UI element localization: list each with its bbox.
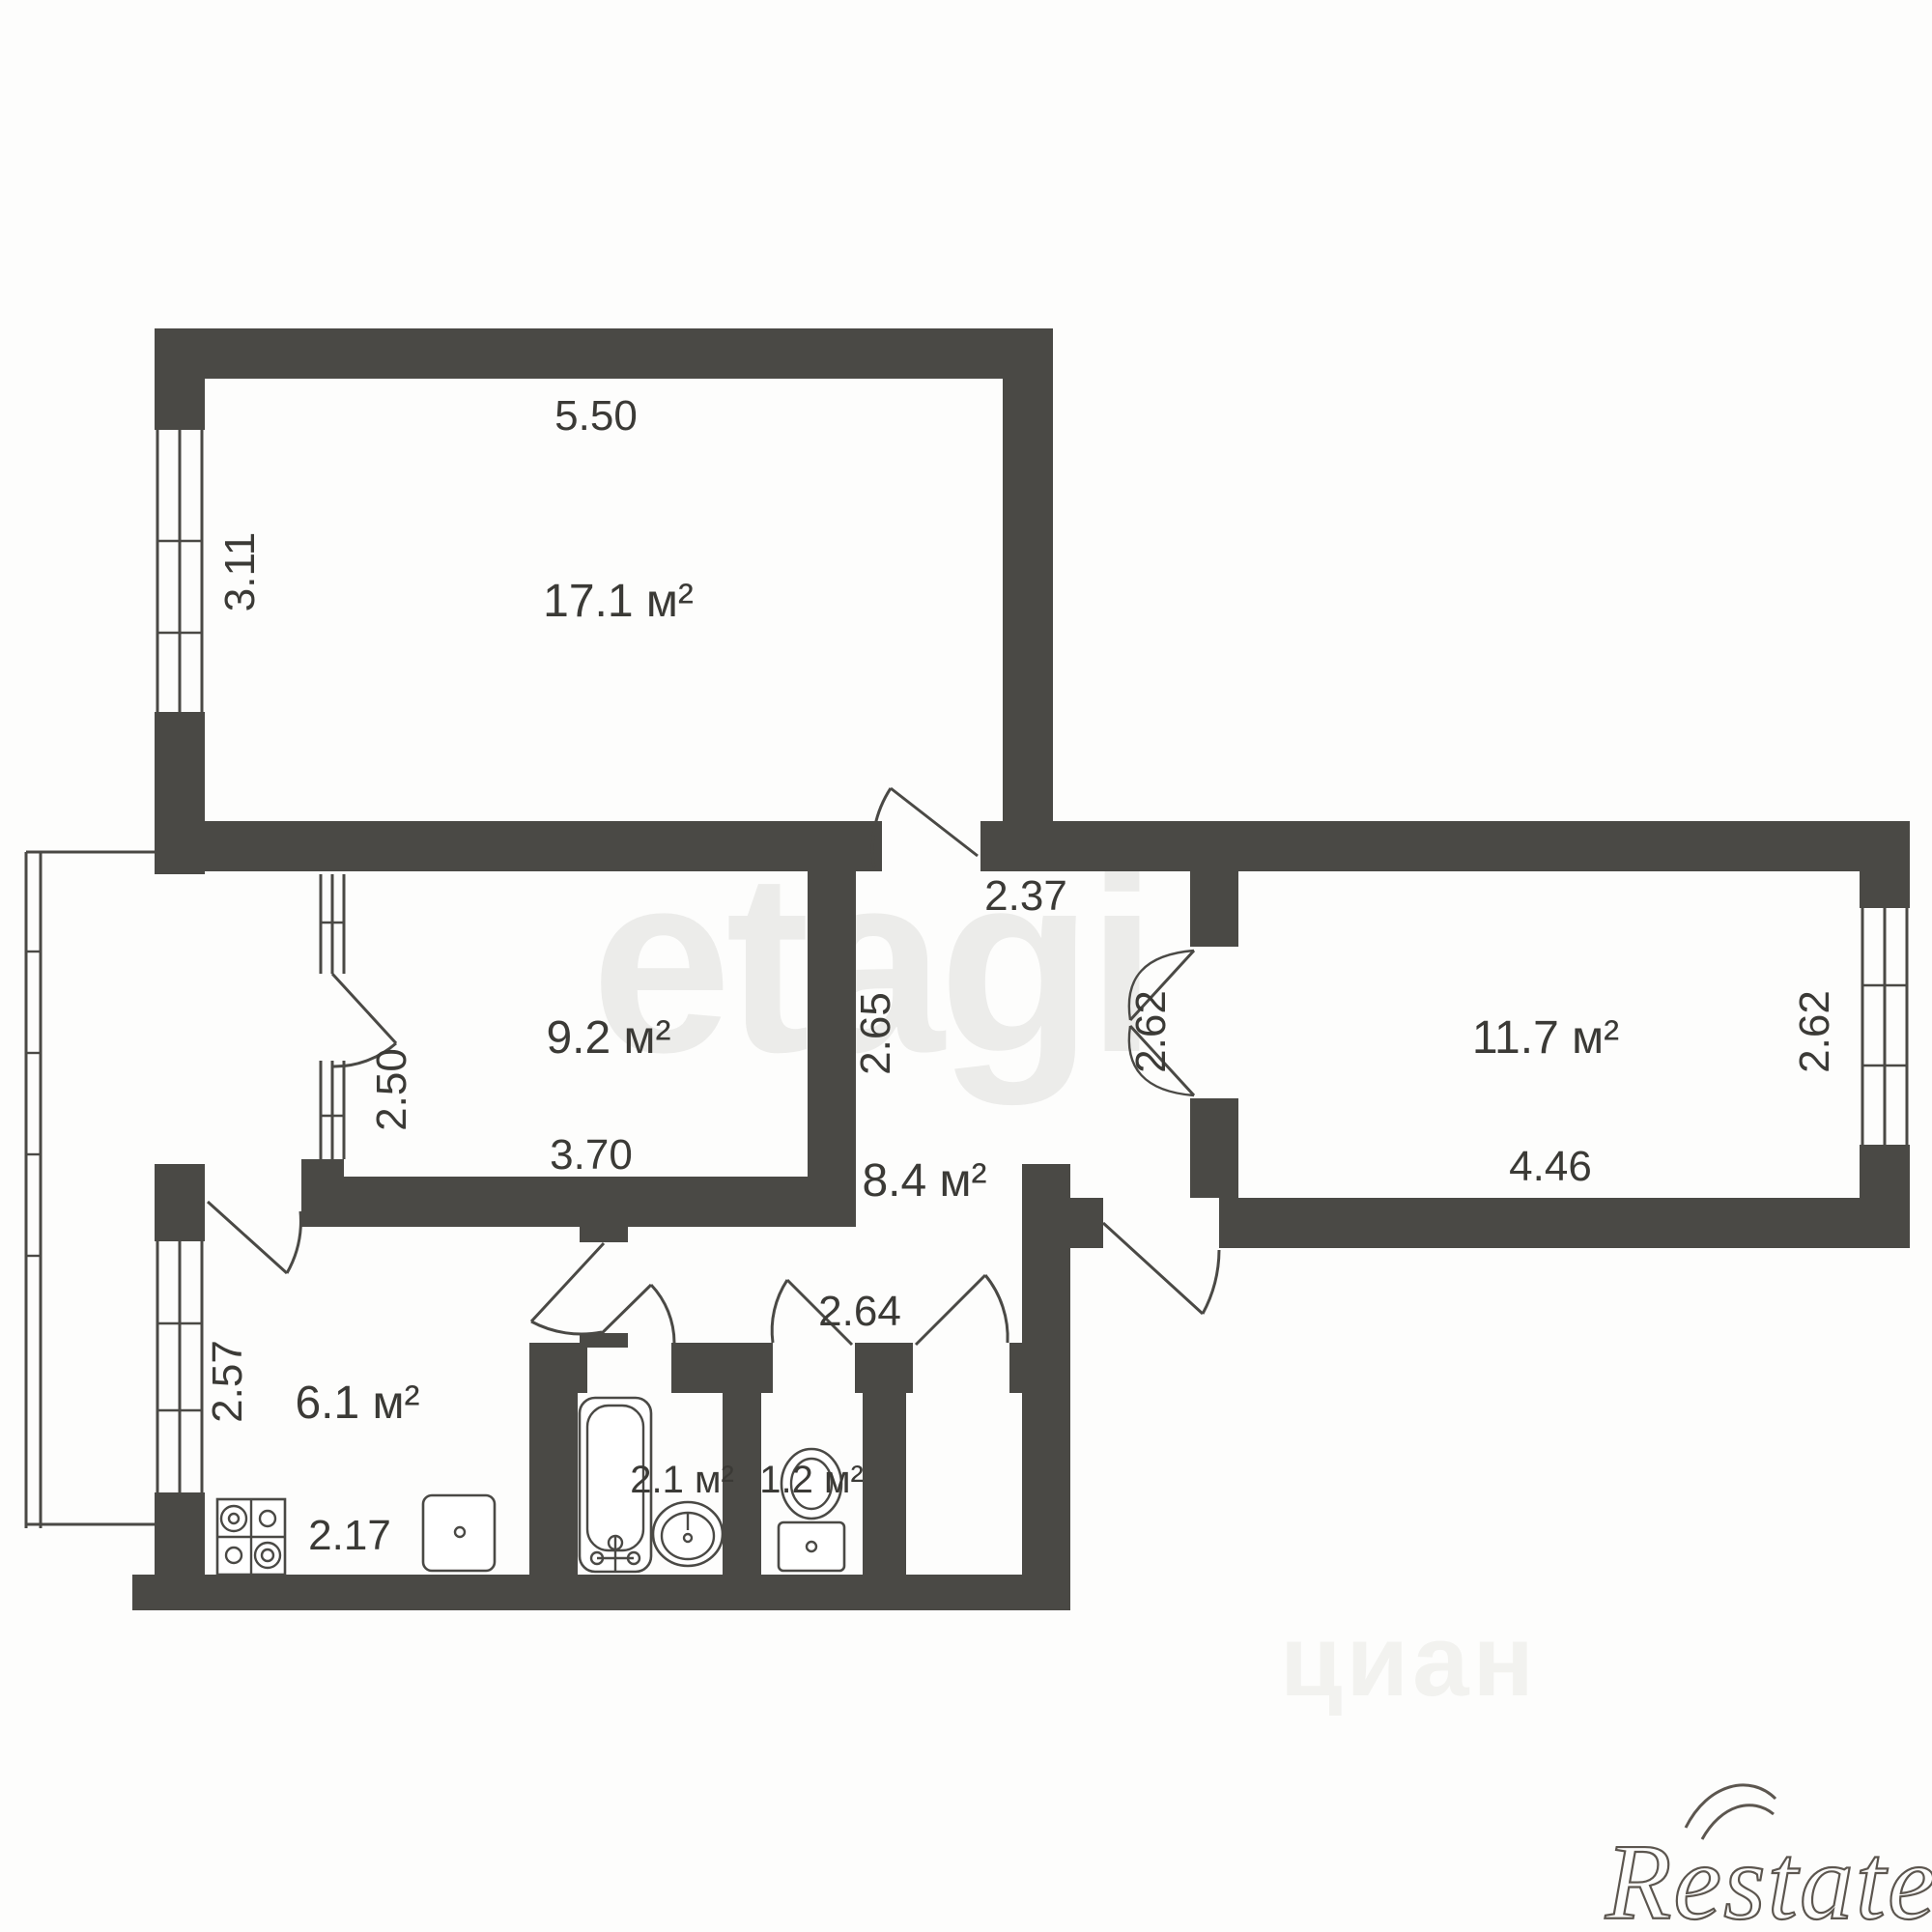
wall-bath-top-2 — [671, 1343, 773, 1393]
door-balcony-bedroom-leaf — [332, 974, 396, 1043]
door-closet-arc — [985, 1275, 1008, 1343]
window-kitchen-left — [157, 1241, 202, 1492]
toilet-tank — [779, 1522, 844, 1571]
window-living-left — [157, 430, 202, 712]
wall-living-right — [1003, 379, 1053, 826]
brand-logo: Restate — [1605, 1785, 1932, 1932]
wall-mid-band-left — [155, 821, 882, 871]
wall-living-left-upper — [155, 379, 205, 430]
room-living-area-label: 17.1 м² — [543, 576, 694, 627]
wall-balcony-corner-block — [301, 1159, 344, 1227]
door-kitchen-leaf — [531, 1243, 604, 1321]
brand-watermark-text: Restate — [1605, 1823, 1932, 1932]
wall-rightroom-right-lower — [1860, 1145, 1910, 1248]
room-bathroom-area-label: 2.1 м² — [630, 1459, 734, 1501]
room-bedroom-area-label: 9.2 м² — [546, 1012, 670, 1064]
wall-bath-top-1 — [529, 1343, 587, 1393]
dim-living-width: 5.50 — [554, 392, 638, 440]
dim-hallway-height: 2.65 — [852, 992, 899, 1075]
wall-rightroom-left-lower — [1190, 1098, 1238, 1198]
dim-rightroom-width: 4.46 — [1509, 1143, 1592, 1190]
wall-living-top — [155, 328, 1053, 379]
watermark-cian: циан — [1280, 1605, 1538, 1718]
wall-kitchen-door-upper-stub — [580, 1227, 628, 1242]
door-closet-leaf — [916, 1275, 985, 1345]
wall-bath-top-3 — [855, 1343, 913, 1393]
room-kitchen-area-label: 6.1 м² — [295, 1378, 419, 1429]
sink-body — [423, 1495, 495, 1571]
door-balcony-kitchen-arc — [287, 1211, 300, 1273]
dim-hallway-width: 2.37 — [984, 872, 1067, 920]
wall-kitchen-top — [301, 1177, 856, 1227]
door-bathroom-arc — [651, 1285, 674, 1343]
room-wc-area-label: 1.2 м² — [759, 1459, 864, 1501]
washbasin-icon — [653, 1502, 723, 1566]
door-entry-leaf — [1103, 1223, 1203, 1314]
wall-rightroom-bottom — [1219, 1198, 1910, 1248]
door-kitchen-arc — [531, 1321, 602, 1334]
wall-corridor-right — [1022, 1164, 1070, 1608]
dim-kitchen-width: 2.17 — [308, 1512, 391, 1559]
dim-rightroom-door: 2.62 — [1127, 990, 1175, 1073]
wall-rightroom-right-upper — [1860, 821, 1910, 908]
dim-rightroom-window: 2.62 — [1791, 990, 1838, 1073]
door-wc-arc — [772, 1280, 787, 1343]
wall-hallway-left — [808, 871, 856, 1227]
wall-bottom-band — [132, 1575, 1070, 1610]
door-balcony-kitchen-leaf — [208, 1202, 287, 1273]
kitchen-sink-icon — [423, 1495, 495, 1571]
wall-kitchen-left-upper — [155, 1164, 205, 1241]
dim-living-window: 3.11 — [216, 532, 264, 611]
floor-plan-page: etagi циан — [0, 0, 1932, 1932]
wall-mid-band-right — [980, 821, 1910, 871]
floor-plan-svg: etagi циан — [0, 0, 1932, 1932]
balcony — [26, 852, 156, 1528]
room-hallway-area-label: 8.4 м² — [862, 1155, 986, 1207]
door-entry-arc — [1203, 1250, 1219, 1314]
stove-icon — [217, 1499, 285, 1575]
wall-wc-closet-divider — [863, 1393, 906, 1577]
wall-entry-jamb — [1070, 1198, 1103, 1248]
dim-bedroom-width: 3.70 — [550, 1131, 633, 1179]
wall-rightroom-left-upper — [1190, 871, 1238, 947]
window-rightroom — [1862, 908, 1907, 1145]
dim-corridor-width: 2.64 — [818, 1288, 901, 1335]
dim-kitchen-height: 2.57 — [204, 1340, 251, 1423]
dim-bedroom-balcony-door: 2.50 — [368, 1048, 415, 1131]
window-bedroom-balcony — [321, 874, 344, 1159]
room-rightroom-area-label: 11.7 м² — [1472, 1012, 1619, 1064]
